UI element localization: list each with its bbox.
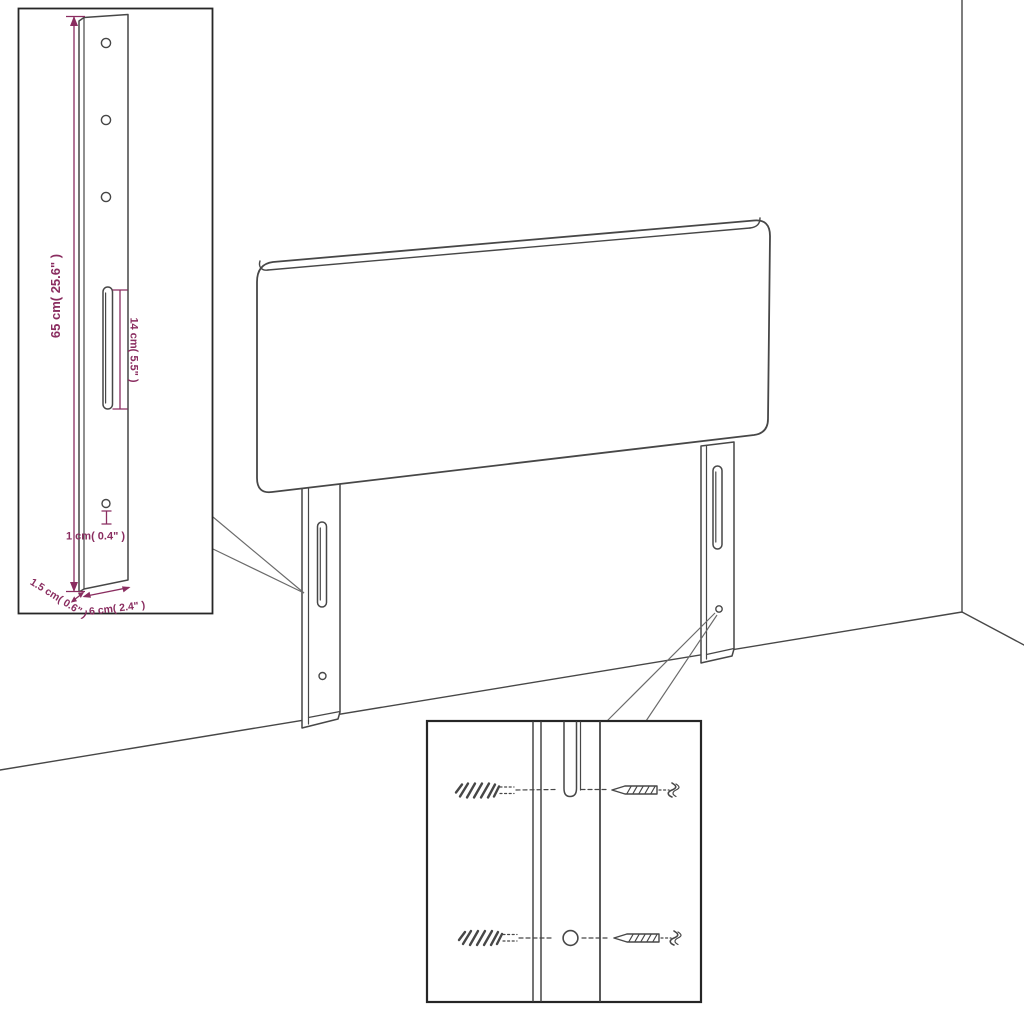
left-leg-outline — [302, 481, 340, 728]
callout-lines — [213, 517, 717, 721]
floor-line-right — [962, 612, 1024, 645]
height-dimension-label: 65 cm( 25.6" ) — [48, 254, 63, 338]
headboard-panel — [257, 220, 770, 492]
left-leg — [302, 481, 340, 728]
diagram-canvas: 65 cm( 25.6" ) 14 cm( 5.5" ) 1 cm( 0.4" … — [0, 0, 1024, 1024]
mounting-detail-inset — [427, 721, 701, 1002]
hole-dimension-label: 1 cm( 0.4" ) — [66, 531, 125, 543]
right-leg — [701, 442, 734, 663]
headboard — [257, 218, 770, 492]
headboard-assembly-diagram: 65 cm( 25.6" ) 14 cm( 5.5" ) 1 cm( 0.4" … — [0, 0, 1024, 1024]
slot-dimension-label: 14 cm( 5.5" ) — [128, 317, 140, 382]
bracket-detail-inset: 65 cm( 25.6" ) 14 cm( 5.5" ) 1 cm( 0.4" … — [19, 9, 213, 621]
callout-line-mounting-right — [646, 615, 717, 721]
